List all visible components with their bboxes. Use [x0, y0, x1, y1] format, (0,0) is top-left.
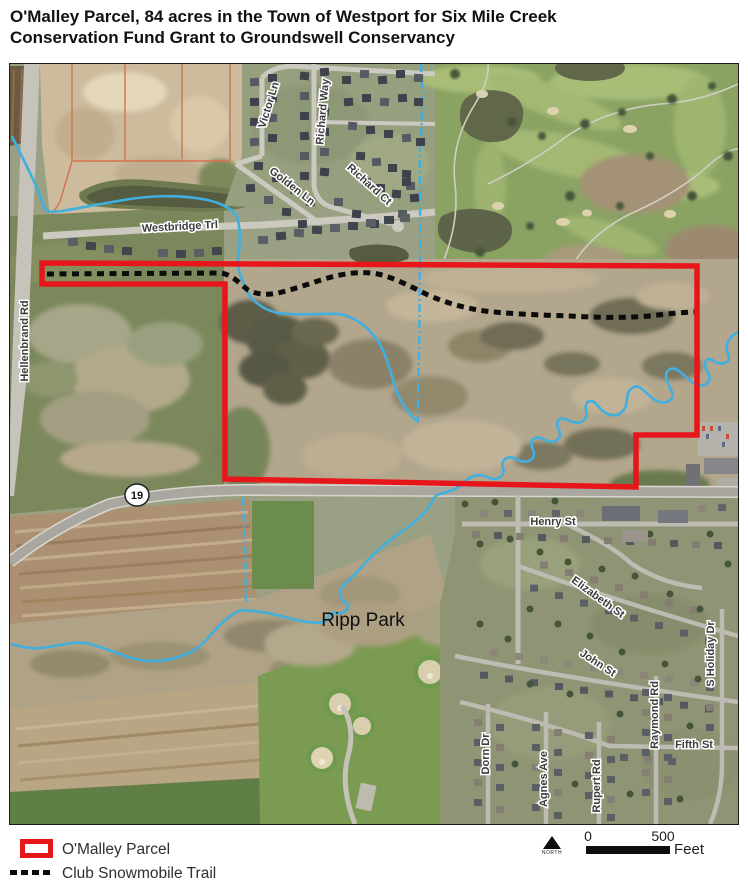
scale-unit: Feet: [674, 841, 704, 858]
legend-trail-label: Club Snowmobile Trail: [62, 865, 216, 883]
scale-zero: 0: [578, 828, 598, 844]
label-dorn-dr: Dorn Dr: [480, 733, 492, 775]
legend-parcel-label: O'Malley Parcel: [62, 841, 170, 859]
map-title: O'Malley Parcel, 84 acres in the Town of…: [10, 6, 740, 48]
legend: O'Malley Parcel Club Snowmobile Trail NO…: [0, 825, 748, 892]
parcel-swatch: [20, 839, 53, 858]
map-title-line2: Conservation Fund Grant to Groundswell C…: [10, 27, 740, 48]
label-ripp-park: Ripp Park: [321, 610, 405, 631]
label-hellenbrand-rd: Hellenbrand Rd: [19, 300, 31, 381]
scale-bar: [586, 846, 670, 854]
aerial-map: 19 Hellenbrand Rd Westbridge Trl Victor …: [9, 63, 739, 825]
label-raymond-rd: Raymond Rd: [649, 681, 661, 749]
north-arrow: NORTH: [540, 836, 564, 856]
north-arrow-icon: [543, 836, 561, 849]
label-agnes-ave: Agnes Ave: [538, 751, 550, 807]
aerial-imagery: 19 Hellenbrand Rd Westbridge Trl Victor …: [10, 64, 738, 824]
label-rupert-rd: Rupert Rd: [591, 759, 603, 812]
trail-swatch: [10, 870, 52, 875]
map-sheet: O'Malley Parcel, 84 acres in the Town of…: [0, 0, 748, 892]
label-s-holiday-dr: S Holiday Dr: [705, 621, 717, 687]
highway-19-shield: 19: [125, 484, 149, 506]
map-title-line1: O'Malley Parcel, 84 acres in the Town of…: [10, 6, 740, 27]
north-arrow-label: NORTH: [540, 850, 564, 856]
label-henry-st: Henry St: [530, 516, 576, 528]
highway-19-label: 19: [131, 490, 143, 502]
label-fifth-st: Fifth St: [675, 739, 713, 751]
pond-small: [349, 245, 409, 264]
green-field-s: [252, 501, 314, 589]
